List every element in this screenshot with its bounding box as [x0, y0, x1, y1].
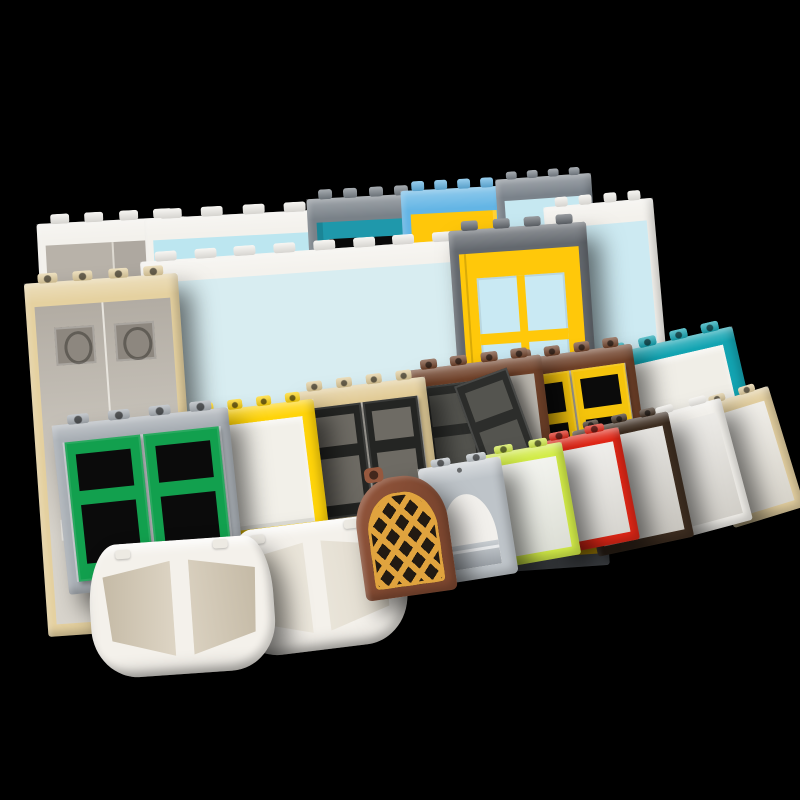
stud — [457, 178, 470, 189]
stud — [434, 180, 447, 191]
printed-vent — [54, 325, 97, 366]
sash-opening — [155, 440, 214, 483]
stud — [194, 248, 217, 260]
stud — [461, 220, 479, 231]
stud — [492, 218, 510, 229]
stud — [305, 380, 323, 392]
printed-vent — [113, 321, 156, 362]
sash-opening — [315, 413, 358, 448]
lego-doors-windows-product-photo — [0, 0, 800, 800]
sash-opening — [580, 374, 622, 409]
stud — [115, 549, 131, 559]
sash-opening — [371, 407, 414, 442]
stud — [480, 351, 498, 363]
stud — [159, 208, 181, 219]
vent-fan-circle — [63, 330, 94, 365]
stud — [510, 347, 528, 359]
stud — [555, 214, 573, 225]
stud — [411, 181, 424, 192]
barrel-hole — [368, 470, 378, 480]
stud — [568, 167, 580, 176]
stud — [343, 188, 358, 199]
stud — [284, 201, 306, 212]
stud — [523, 216, 541, 227]
stud — [284, 391, 301, 403]
stud — [212, 539, 228, 549]
top-barrel — [363, 466, 384, 483]
stud — [480, 177, 493, 188]
stud — [395, 369, 413, 381]
stud — [201, 206, 223, 217]
stud — [318, 189, 333, 200]
sash-opening — [465, 380, 513, 423]
stud — [365, 373, 383, 385]
stud — [450, 354, 468, 366]
stud — [84, 212, 103, 223]
sash-opening — [76, 448, 135, 491]
stud — [273, 242, 296, 254]
stud — [313, 239, 336, 251]
stud — [392, 234, 415, 246]
vent-fan-circle — [123, 326, 154, 361]
stud — [547, 168, 559, 177]
stud — [108, 268, 128, 279]
stud — [603, 192, 617, 203]
stud — [526, 170, 538, 179]
bow-window-left — [86, 534, 279, 681]
stud — [50, 213, 69, 224]
stud — [335, 376, 353, 388]
sash-opening — [320, 455, 365, 506]
stud — [255, 395, 272, 407]
stud — [505, 171, 517, 180]
stud — [73, 270, 93, 281]
stud — [119, 210, 138, 221]
stud — [37, 272, 57, 283]
stud — [242, 204, 264, 215]
stud — [234, 245, 257, 257]
stud — [554, 196, 568, 207]
stud — [419, 358, 437, 370]
stud — [627, 190, 641, 201]
stud — [353, 236, 376, 248]
gold-lattice — [363, 487, 445, 591]
stud — [226, 398, 243, 410]
stud — [154, 250, 177, 262]
lattice-area — [363, 487, 445, 591]
stud — [578, 194, 592, 205]
stud — [369, 186, 384, 197]
stud — [143, 265, 163, 276]
